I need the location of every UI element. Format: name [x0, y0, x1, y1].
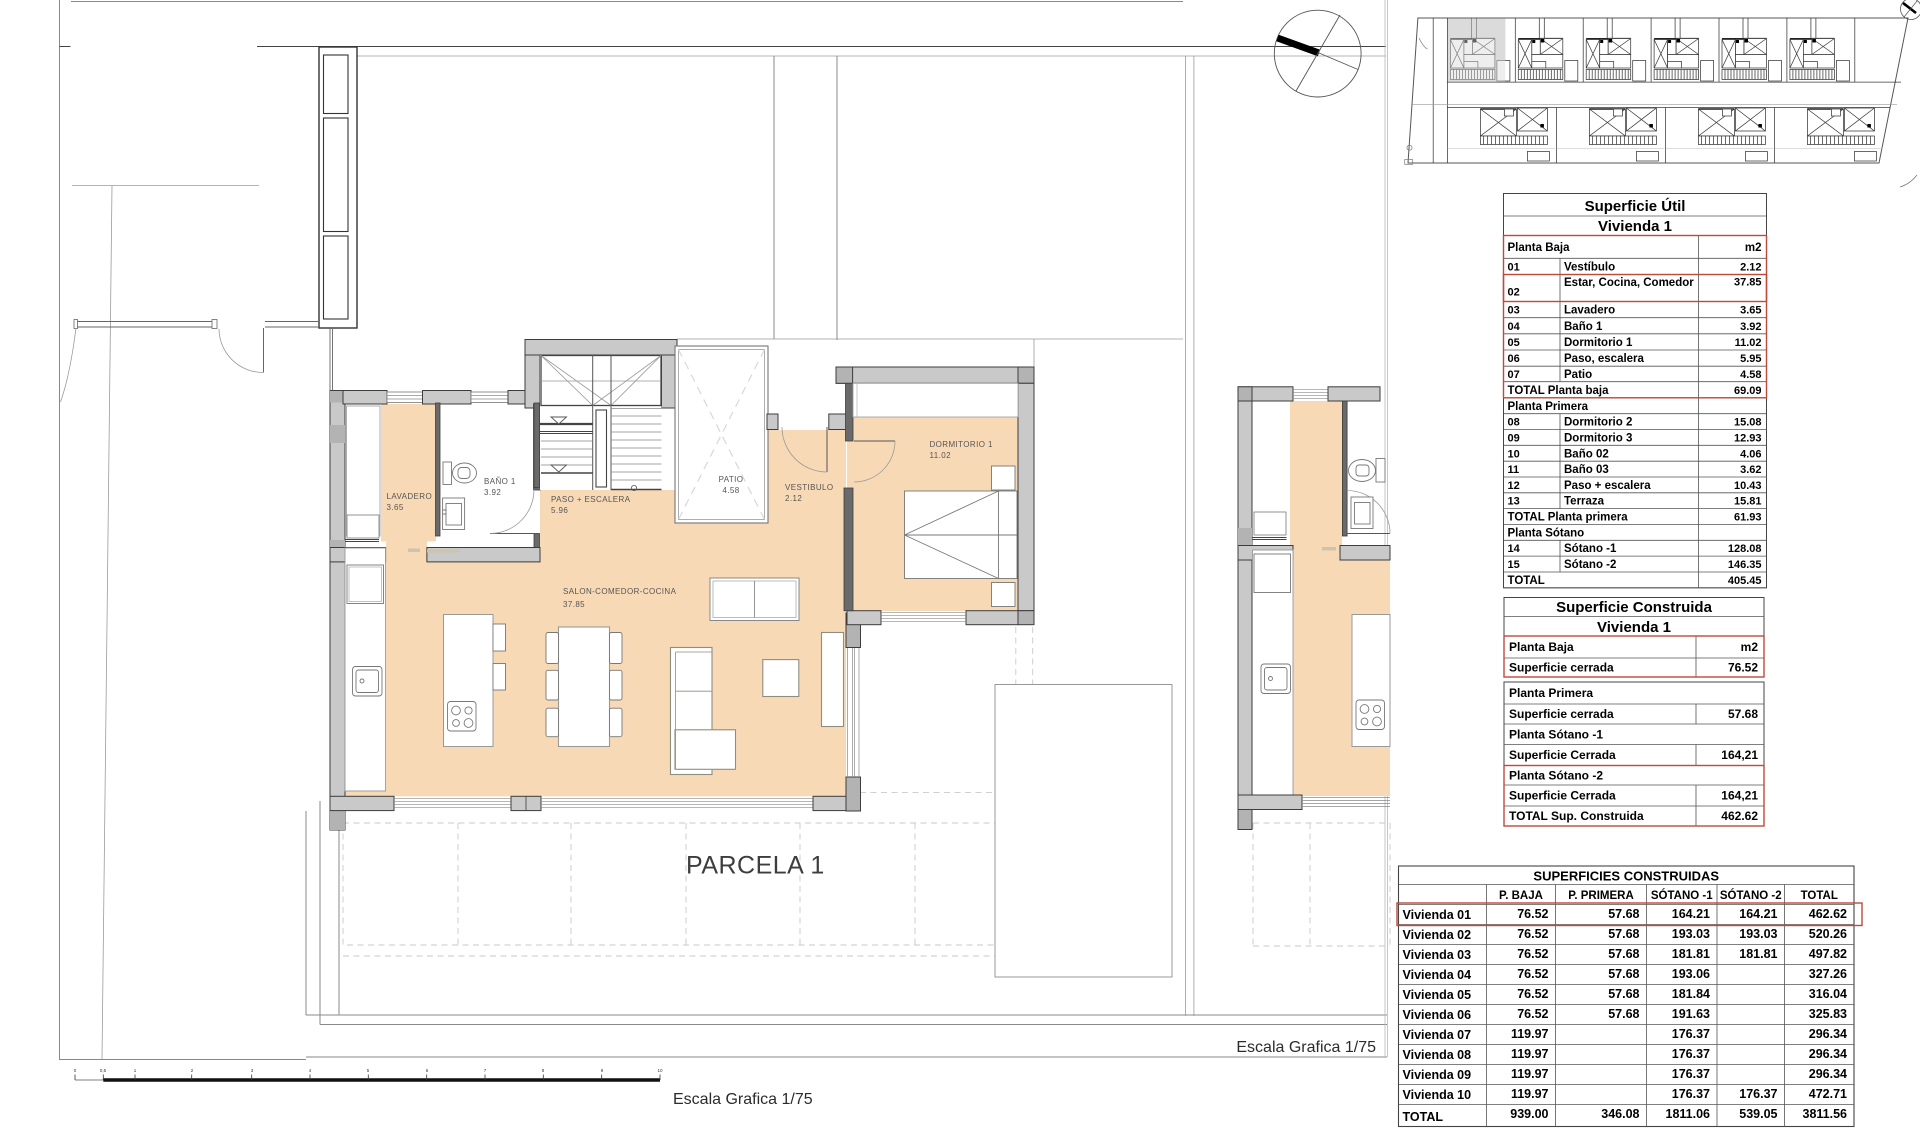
svg-text:2.12: 2.12 [1740, 261, 1761, 273]
svg-text:164,21: 164,21 [1721, 748, 1758, 762]
svg-text:193.06: 193.06 [1672, 967, 1710, 981]
svg-text:14: 14 [1508, 543, 1521, 555]
svg-text:Superficie Cerrada: Superficie Cerrada [1509, 748, 1616, 762]
svg-text:1811.06: 1811.06 [1666, 1107, 1711, 1121]
svg-text:181.84: 181.84 [1672, 987, 1710, 1001]
svg-text:119.97: 119.97 [1511, 1087, 1549, 1101]
svg-text:TOTAL Sup. Construida: TOTAL Sup. Construida [1509, 809, 1644, 823]
svg-text:181.81: 181.81 [1672, 947, 1710, 961]
svg-text:164.21: 164.21 [1672, 907, 1710, 921]
svg-text:57.68: 57.68 [1728, 707, 1758, 721]
svg-text:TOTAL Planta baja: TOTAL Planta baja [1508, 385, 1610, 397]
svg-text:09: 09 [1508, 432, 1520, 444]
svg-text:12.93: 12.93 [1734, 432, 1762, 444]
svg-text:Patio: Patio [1564, 369, 1592, 381]
svg-text:Terraza: Terraza [1564, 496, 1605, 508]
svg-text:SÓTANO -2: SÓTANO -2 [1720, 889, 1782, 902]
svg-text:5.95: 5.95 [1740, 353, 1761, 365]
svg-text:176.37: 176.37 [1672, 1067, 1710, 1081]
svg-text:119.97: 119.97 [1511, 1047, 1549, 1061]
svg-text:296.34: 296.34 [1809, 1047, 1847, 1061]
svg-text:Planta Sótano -1: Planta Sótano -1 [1509, 727, 1603, 741]
svg-text:Vivienda 02: Vivienda 02 [1403, 928, 1472, 942]
svg-text:15: 15 [1508, 559, 1520, 571]
svg-text:3811.56: 3811.56 [1803, 1107, 1848, 1121]
svg-text:Sótano -1: Sótano -1 [1564, 543, 1617, 555]
svg-text:405.45: 405.45 [1728, 575, 1762, 587]
svg-text:76.52: 76.52 [1517, 947, 1548, 961]
svg-text:76.52: 76.52 [1517, 987, 1548, 1001]
svg-text:193.03: 193.03 [1672, 927, 1710, 941]
svg-text:346.08: 346.08 [1601, 1107, 1639, 1121]
svg-text:Vivienda 07: Vivienda 07 [1403, 1028, 1472, 1042]
svg-text:SUPERFICIES CONSTRUIDAS: SUPERFICIES CONSTRUIDAS [1533, 869, 1719, 884]
svg-text:520.26: 520.26 [1809, 927, 1847, 941]
svg-text:Vivienda 1: Vivienda 1 [1598, 218, 1672, 235]
svg-text:316.04: 316.04 [1809, 987, 1847, 1001]
svg-text:Vivienda 1: Vivienda 1 [1597, 619, 1671, 636]
svg-text:325.83: 325.83 [1809, 1007, 1847, 1021]
svg-text:57.68: 57.68 [1608, 987, 1639, 1001]
svg-text:57.68: 57.68 [1608, 1007, 1639, 1021]
svg-text:462.62: 462.62 [1809, 907, 1847, 921]
svg-text:05: 05 [1508, 337, 1520, 349]
svg-text:57.68: 57.68 [1608, 967, 1639, 981]
svg-text:13: 13 [1508, 496, 1520, 508]
svg-text:37.85: 37.85 [1734, 277, 1762, 289]
svg-text:TOTAL: TOTAL [1403, 1110, 1444, 1124]
svg-text:128.08: 128.08 [1728, 543, 1762, 555]
svg-text:P. BAJA: P. BAJA [1499, 890, 1543, 902]
svg-text:76.52: 76.52 [1517, 1007, 1548, 1021]
svg-text:76.52: 76.52 [1517, 967, 1548, 981]
svg-text:PARCELA 1: PARCELA 1 [686, 852, 825, 880]
svg-text:119.97: 119.97 [1511, 1027, 1549, 1041]
svg-text:76.52: 76.52 [1517, 927, 1548, 941]
svg-text:37.85: 37.85 [563, 600, 585, 609]
svg-text:Vivienda 10: Vivienda 10 [1403, 1088, 1472, 1102]
svg-text:472.71: 472.71 [1809, 1087, 1847, 1101]
svg-text:3.65: 3.65 [1740, 305, 1761, 317]
svg-text:Baño 02: Baño 02 [1564, 448, 1609, 460]
svg-text:Vivienda 04: Vivienda 04 [1403, 968, 1472, 982]
svg-text:0,5: 0,5 [100, 1068, 107, 1073]
svg-text:176.37: 176.37 [1672, 1047, 1710, 1061]
svg-text:191.63: 191.63 [1672, 1007, 1710, 1021]
svg-text:m2: m2 [1745, 242, 1762, 254]
svg-text:TOTAL Planta primera: TOTAL Planta primera [1508, 512, 1629, 524]
svg-text:Superficie Cerrada: Superficie Cerrada [1509, 789, 1616, 803]
svg-text:Vivienda 01: Vivienda 01 [1403, 908, 1472, 922]
svg-text:SÓTANO -1: SÓTANO -1 [1651, 889, 1713, 902]
svg-text:296.34: 296.34 [1809, 1027, 1847, 1041]
svg-text:2.12: 2.12 [785, 494, 802, 503]
svg-text:DORMITORIO 1: DORMITORIO 1 [930, 440, 993, 449]
svg-text:11: 11 [1508, 464, 1520, 476]
svg-text:176.37: 176.37 [1739, 1087, 1777, 1101]
svg-text:Superficie Útil: Superficie Útil [1585, 197, 1686, 215]
svg-text:146.35: 146.35 [1728, 559, 1762, 571]
svg-text:Superficie cerrada: Superficie cerrada [1509, 707, 1614, 721]
svg-text:P. PRIMERA: P. PRIMERA [1568, 890, 1634, 902]
svg-text:327.26: 327.26 [1809, 967, 1847, 981]
svg-text:TOTAL: TOTAL [1508, 575, 1545, 587]
svg-text:76.52: 76.52 [1517, 907, 1548, 921]
svg-text:08: 08 [1508, 417, 1520, 429]
svg-text:VESTIBULO: VESTIBULO [785, 483, 834, 492]
svg-text:57.68: 57.68 [1608, 947, 1639, 961]
svg-text:SALON-COMEDOR-COCINA: SALON-COMEDOR-COCINA [563, 587, 677, 596]
svg-text:4.58: 4.58 [722, 486, 739, 495]
svg-text:LAVADERO: LAVADERO [387, 492, 433, 501]
svg-text:Paso + escalera: Paso + escalera [1564, 480, 1651, 492]
svg-text:11.02: 11.02 [930, 451, 952, 460]
svg-text:03: 03 [1508, 305, 1520, 317]
svg-text:Paso, escalera: Paso, escalera [1564, 353, 1645, 365]
svg-text:07: 07 [1508, 369, 1520, 381]
svg-text:m2: m2 [1741, 640, 1759, 654]
svg-text:Vivienda 03: Vivienda 03 [1403, 948, 1472, 962]
svg-text:Planta Baja: Planta Baja [1508, 242, 1571, 254]
svg-text:Planta Sótano -2: Planta Sótano -2 [1509, 768, 1603, 782]
svg-text:Dormitorio 3: Dormitorio 3 [1564, 432, 1632, 444]
svg-text:193.03: 193.03 [1739, 927, 1777, 941]
svg-text:Planta Primera: Planta Primera [1509, 686, 1593, 700]
svg-text:3.92: 3.92 [1740, 321, 1761, 333]
svg-text:462.62: 462.62 [1721, 809, 1758, 823]
svg-text:Dormitorio 1: Dormitorio 1 [1564, 337, 1633, 349]
svg-text:TOTAL: TOTAL [1801, 890, 1838, 902]
svg-text:Escala Grafica 1/75: Escala Grafica 1/75 [1236, 1039, 1376, 1056]
svg-text:Planta Primera: Planta Primera [1508, 401, 1589, 413]
svg-text:3.62: 3.62 [1740, 464, 1761, 476]
svg-text:02: 02 [1508, 287, 1520, 299]
svg-text:57.68: 57.68 [1608, 907, 1639, 921]
svg-text:296.34: 296.34 [1809, 1067, 1847, 1081]
svg-text:Sótano -2: Sótano -2 [1564, 559, 1616, 571]
svg-text:Superficie cerrada: Superficie cerrada [1509, 661, 1614, 675]
svg-text:939.00: 939.00 [1510, 1107, 1548, 1121]
svg-text:76.52: 76.52 [1728, 661, 1758, 675]
svg-text:Vivienda 09: Vivienda 09 [1403, 1068, 1472, 1082]
svg-text:Planta Baja: Planta Baja [1509, 640, 1574, 654]
svg-text:Estar, Cocina, Comedor: Estar, Cocina, Comedor [1564, 277, 1694, 289]
svg-text:119.97: 119.97 [1511, 1067, 1549, 1081]
svg-text:10: 10 [657, 1068, 663, 1073]
svg-text:176.37: 176.37 [1672, 1027, 1710, 1041]
svg-text:PATIO: PATIO [719, 475, 744, 484]
svg-text:10.43: 10.43 [1734, 480, 1762, 492]
svg-text:10: 10 [1508, 448, 1520, 460]
svg-text:06: 06 [1508, 353, 1520, 365]
svg-text:3.65: 3.65 [387, 503, 404, 512]
svg-text:Dormitorio 2: Dormitorio 2 [1564, 417, 1632, 429]
svg-text:4.06: 4.06 [1740, 448, 1761, 460]
svg-text:4.58: 4.58 [1740, 369, 1761, 381]
svg-text:5.96: 5.96 [551, 506, 568, 515]
svg-text:Planta Sótano: Planta Sótano [1508, 527, 1585, 539]
svg-text:15.81: 15.81 [1734, 496, 1762, 508]
svg-text:PASO + ESCALERA: PASO + ESCALERA [551, 495, 631, 504]
svg-text:57.68: 57.68 [1608, 927, 1639, 941]
svg-text:04: 04 [1508, 321, 1521, 333]
svg-text:61.93: 61.93 [1734, 512, 1762, 524]
svg-text:11.02: 11.02 [1735, 337, 1762, 349]
svg-text:12: 12 [1508, 480, 1520, 492]
svg-text:Vivienda 06: Vivienda 06 [1403, 1008, 1472, 1022]
svg-text:164.21: 164.21 [1739, 907, 1777, 921]
svg-text:Baño 03: Baño 03 [1564, 464, 1609, 476]
svg-text:01: 01 [1508, 261, 1520, 273]
svg-text:Escala Grafica 1/75: Escala Grafica 1/75 [673, 1091, 813, 1108]
svg-text:Baño 1: Baño 1 [1564, 321, 1603, 333]
svg-text:181.81: 181.81 [1739, 947, 1777, 961]
svg-text:164,21: 164,21 [1721, 789, 1758, 803]
svg-text:3.92: 3.92 [484, 488, 501, 497]
svg-text:15.08: 15.08 [1734, 417, 1762, 429]
svg-text:Vestíbulo: Vestíbulo [1564, 261, 1615, 273]
svg-text:Superficie Construida: Superficie Construida [1556, 599, 1713, 616]
svg-text:69.09: 69.09 [1734, 385, 1762, 397]
svg-text:Vivienda 05: Vivienda 05 [1403, 988, 1472, 1002]
svg-text:BAÑO 1: BAÑO 1 [484, 477, 516, 486]
svg-text:Vivienda 08: Vivienda 08 [1403, 1048, 1472, 1062]
svg-text:176.37: 176.37 [1672, 1087, 1710, 1101]
svg-text:Lavadero: Lavadero [1564, 305, 1615, 317]
svg-text:497.82: 497.82 [1809, 947, 1847, 961]
svg-text:539.05: 539.05 [1739, 1107, 1777, 1121]
